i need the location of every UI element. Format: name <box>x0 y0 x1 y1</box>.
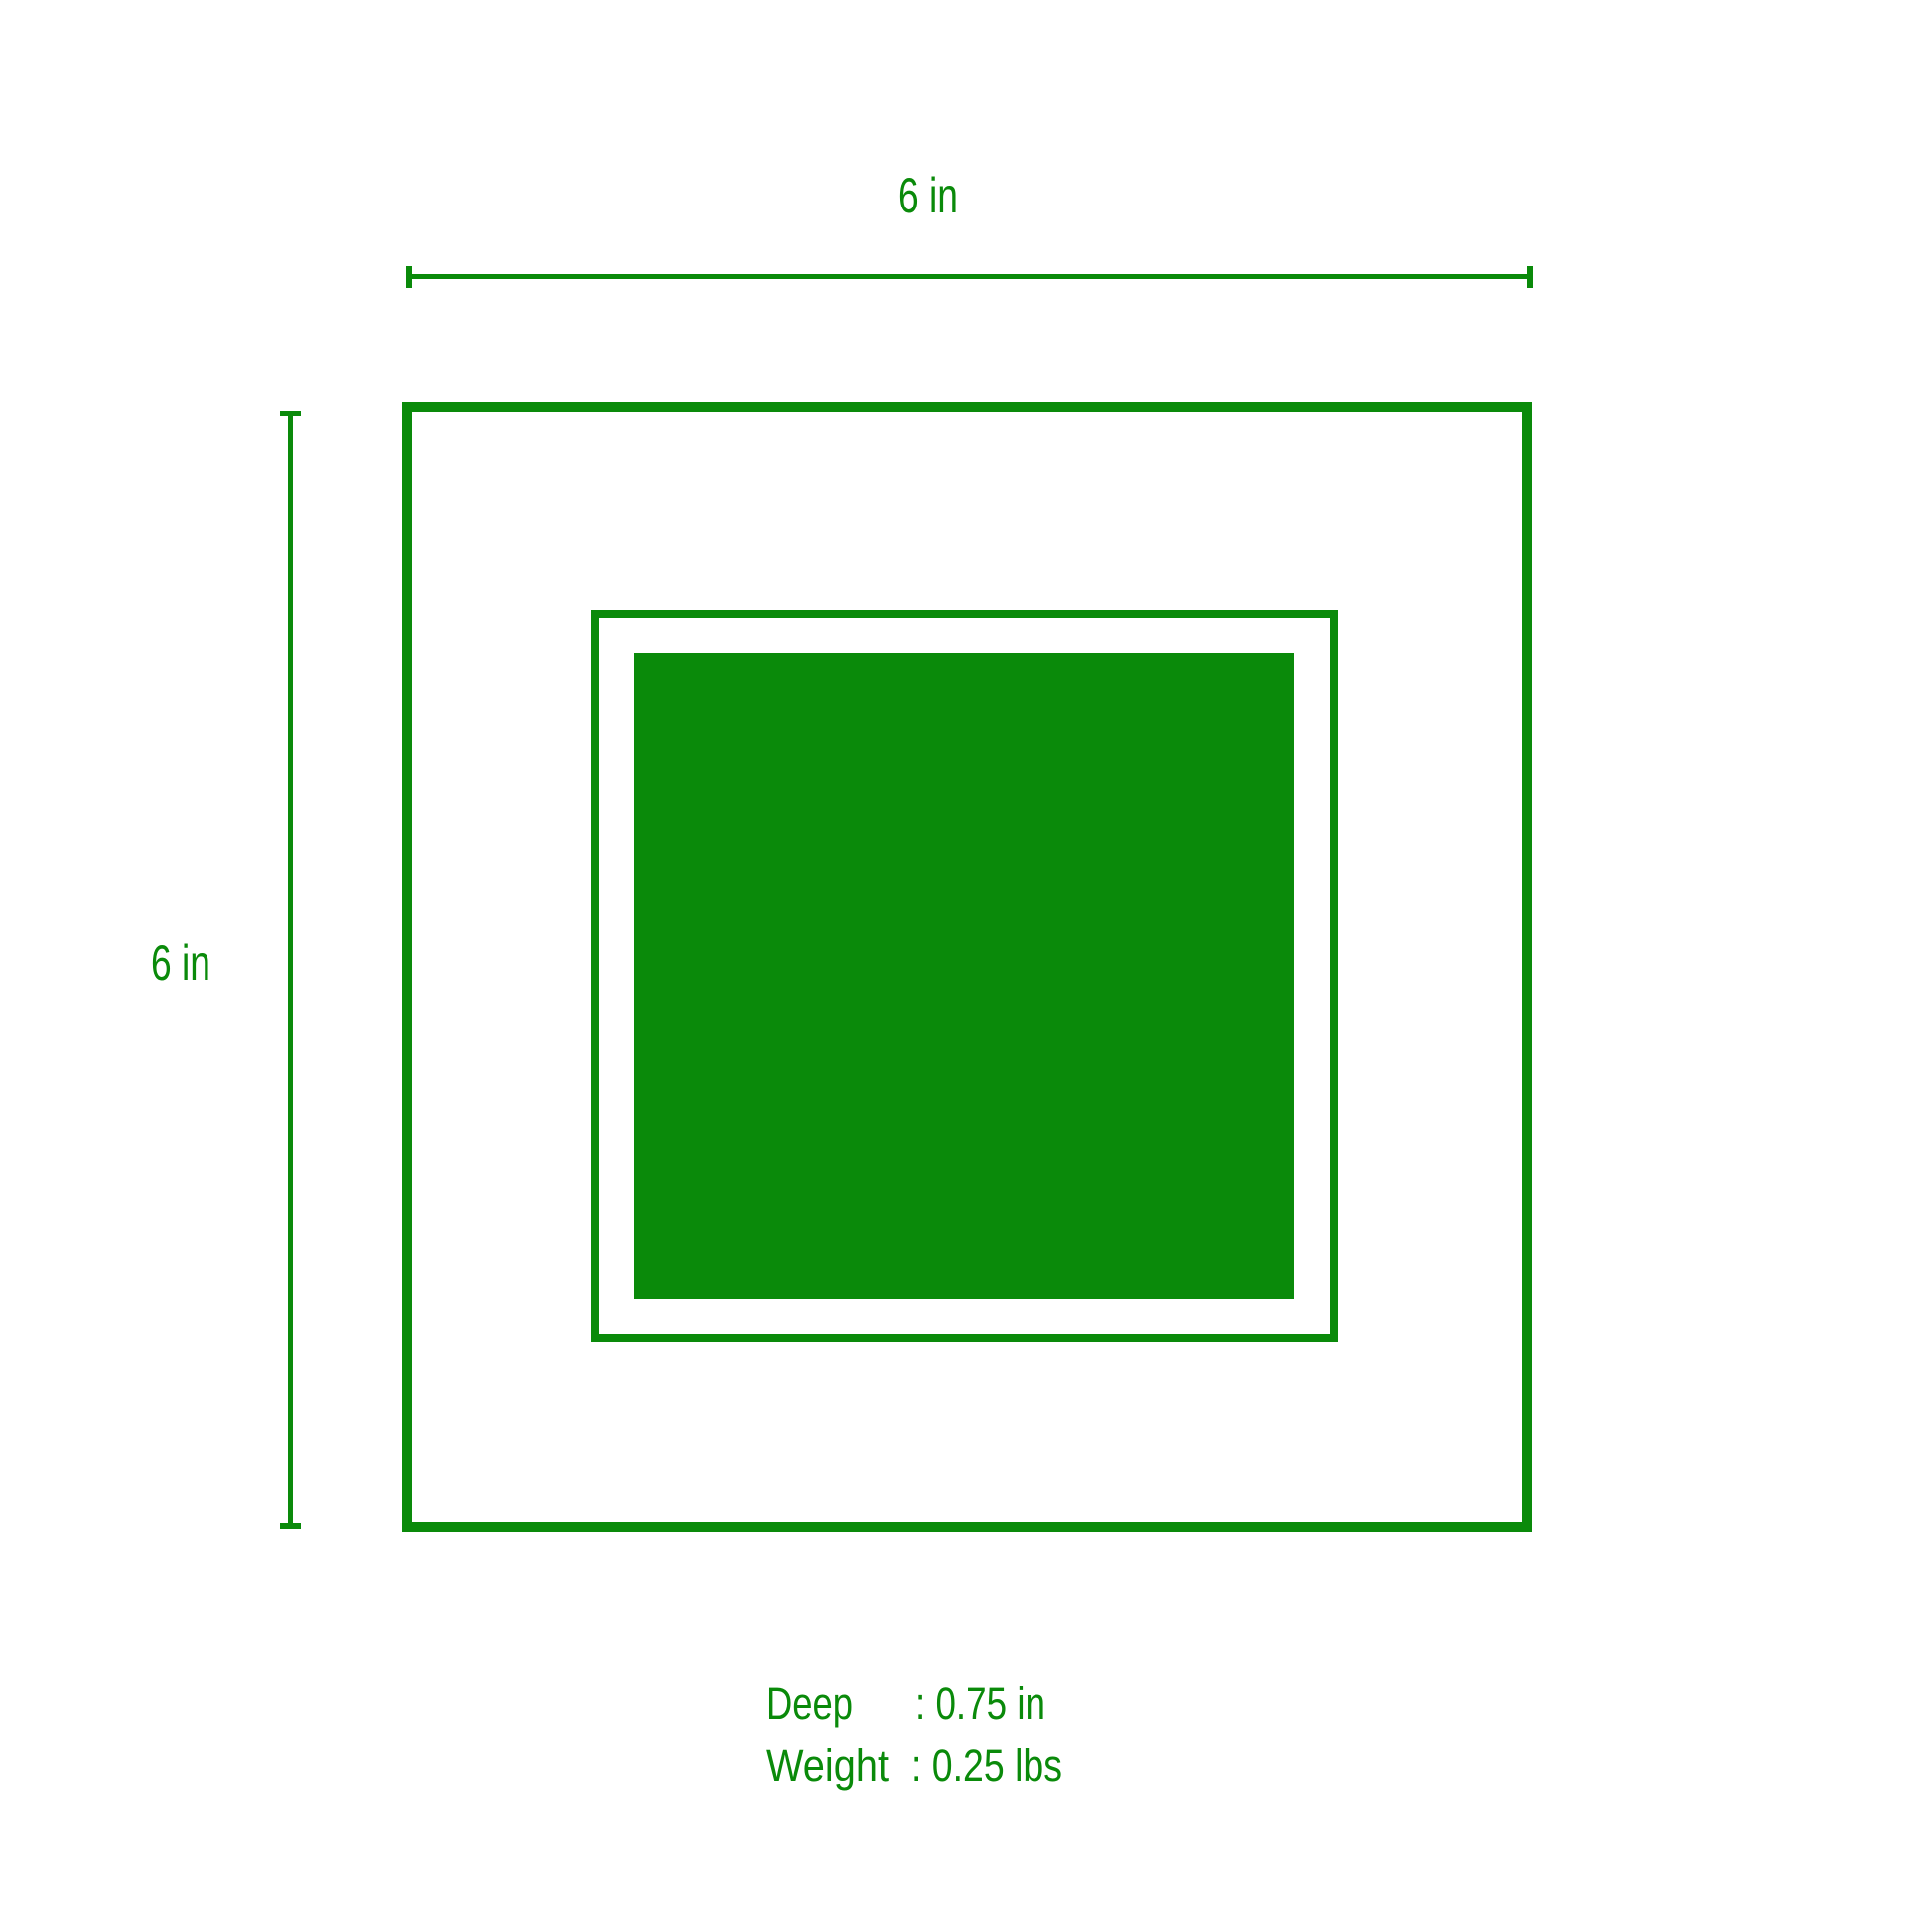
svg-text:Deep: Deep <box>766 1678 853 1728</box>
svg-text:6 in: 6 in <box>151 935 210 991</box>
svg-text:: 0.75 in: : 0.75 in <box>915 1678 1045 1728</box>
svg-text:Weight: Weight <box>766 1740 889 1791</box>
svg-text:: 0.25 lbs: : 0.25 lbs <box>911 1740 1062 1791</box>
svg-text:6 in: 6 in <box>898 168 958 223</box>
